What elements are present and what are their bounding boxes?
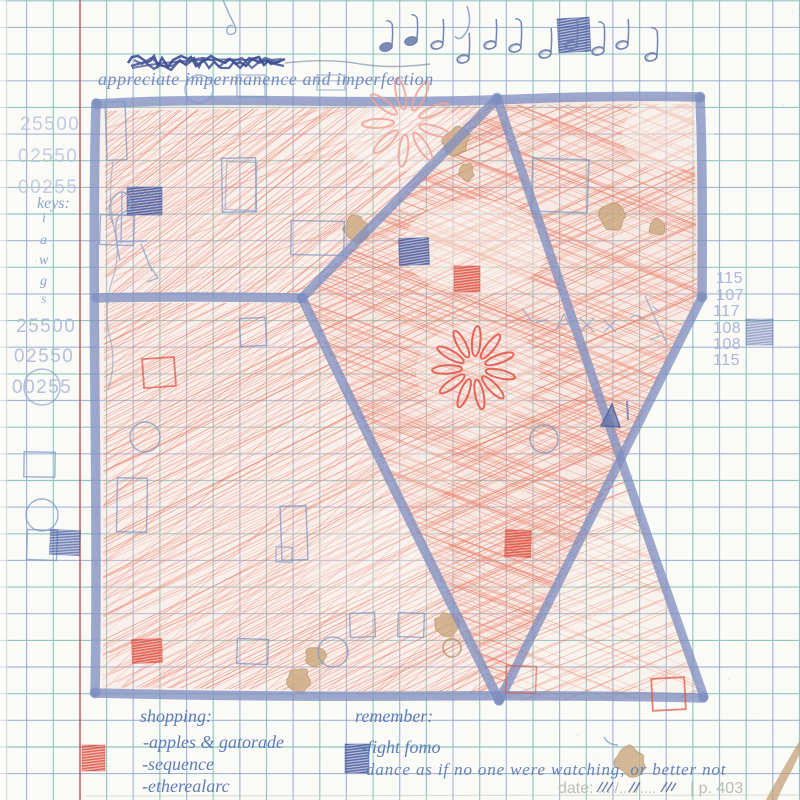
svg-text:dance as if no one were watchi: dance as if no one were watching, or bet… <box>366 760 727 779</box>
svg-text:02550: 02550 <box>14 346 74 367</box>
svg-text:117: 117 <box>713 303 740 320</box>
svg-text:-etherealarc: -etherealarc <box>142 776 230 796</box>
svg-text:115: 115 <box>716 270 743 287</box>
svg-text:g: g <box>40 274 47 289</box>
svg-text:..../..../....: ..../..../.... <box>598 780 656 797</box>
svg-text:a: a <box>40 233 47 248</box>
svg-text:i: i <box>42 211 46 226</box>
svg-text:appreciate impermanence and im: appreciate impermanence and imperfection <box>98 69 434 89</box>
svg-text:00255: 00255 <box>12 377 72 398</box>
svg-text:115: 115 <box>713 352 740 369</box>
svg-text:w: w <box>39 253 49 268</box>
svg-text:-fight fomo: -fight fomo <box>361 737 441 757</box>
svg-text:25500: 25500 <box>16 316 76 337</box>
svg-text:108: 108 <box>713 320 741 337</box>
svg-text:remember:: remember: <box>355 706 433 726</box>
svg-text:keys:: keys: <box>37 195 70 212</box>
svg-text:107: 107 <box>716 287 744 304</box>
svg-text:-apples & gatorade: -apples & gatorade <box>143 732 284 752</box>
svg-text:| p. 403: | p. 403 <box>690 780 743 797</box>
svg-text:-sequence: -sequence <box>142 754 214 774</box>
svg-text:date:: date: <box>558 780 594 797</box>
svg-text:02550: 02550 <box>18 146 78 167</box>
svg-text:s: s <box>41 292 47 307</box>
svg-text:108: 108 <box>713 336 741 353</box>
svg-text:25500: 25500 <box>20 114 80 135</box>
svg-text:shopping:: shopping: <box>140 706 212 726</box>
